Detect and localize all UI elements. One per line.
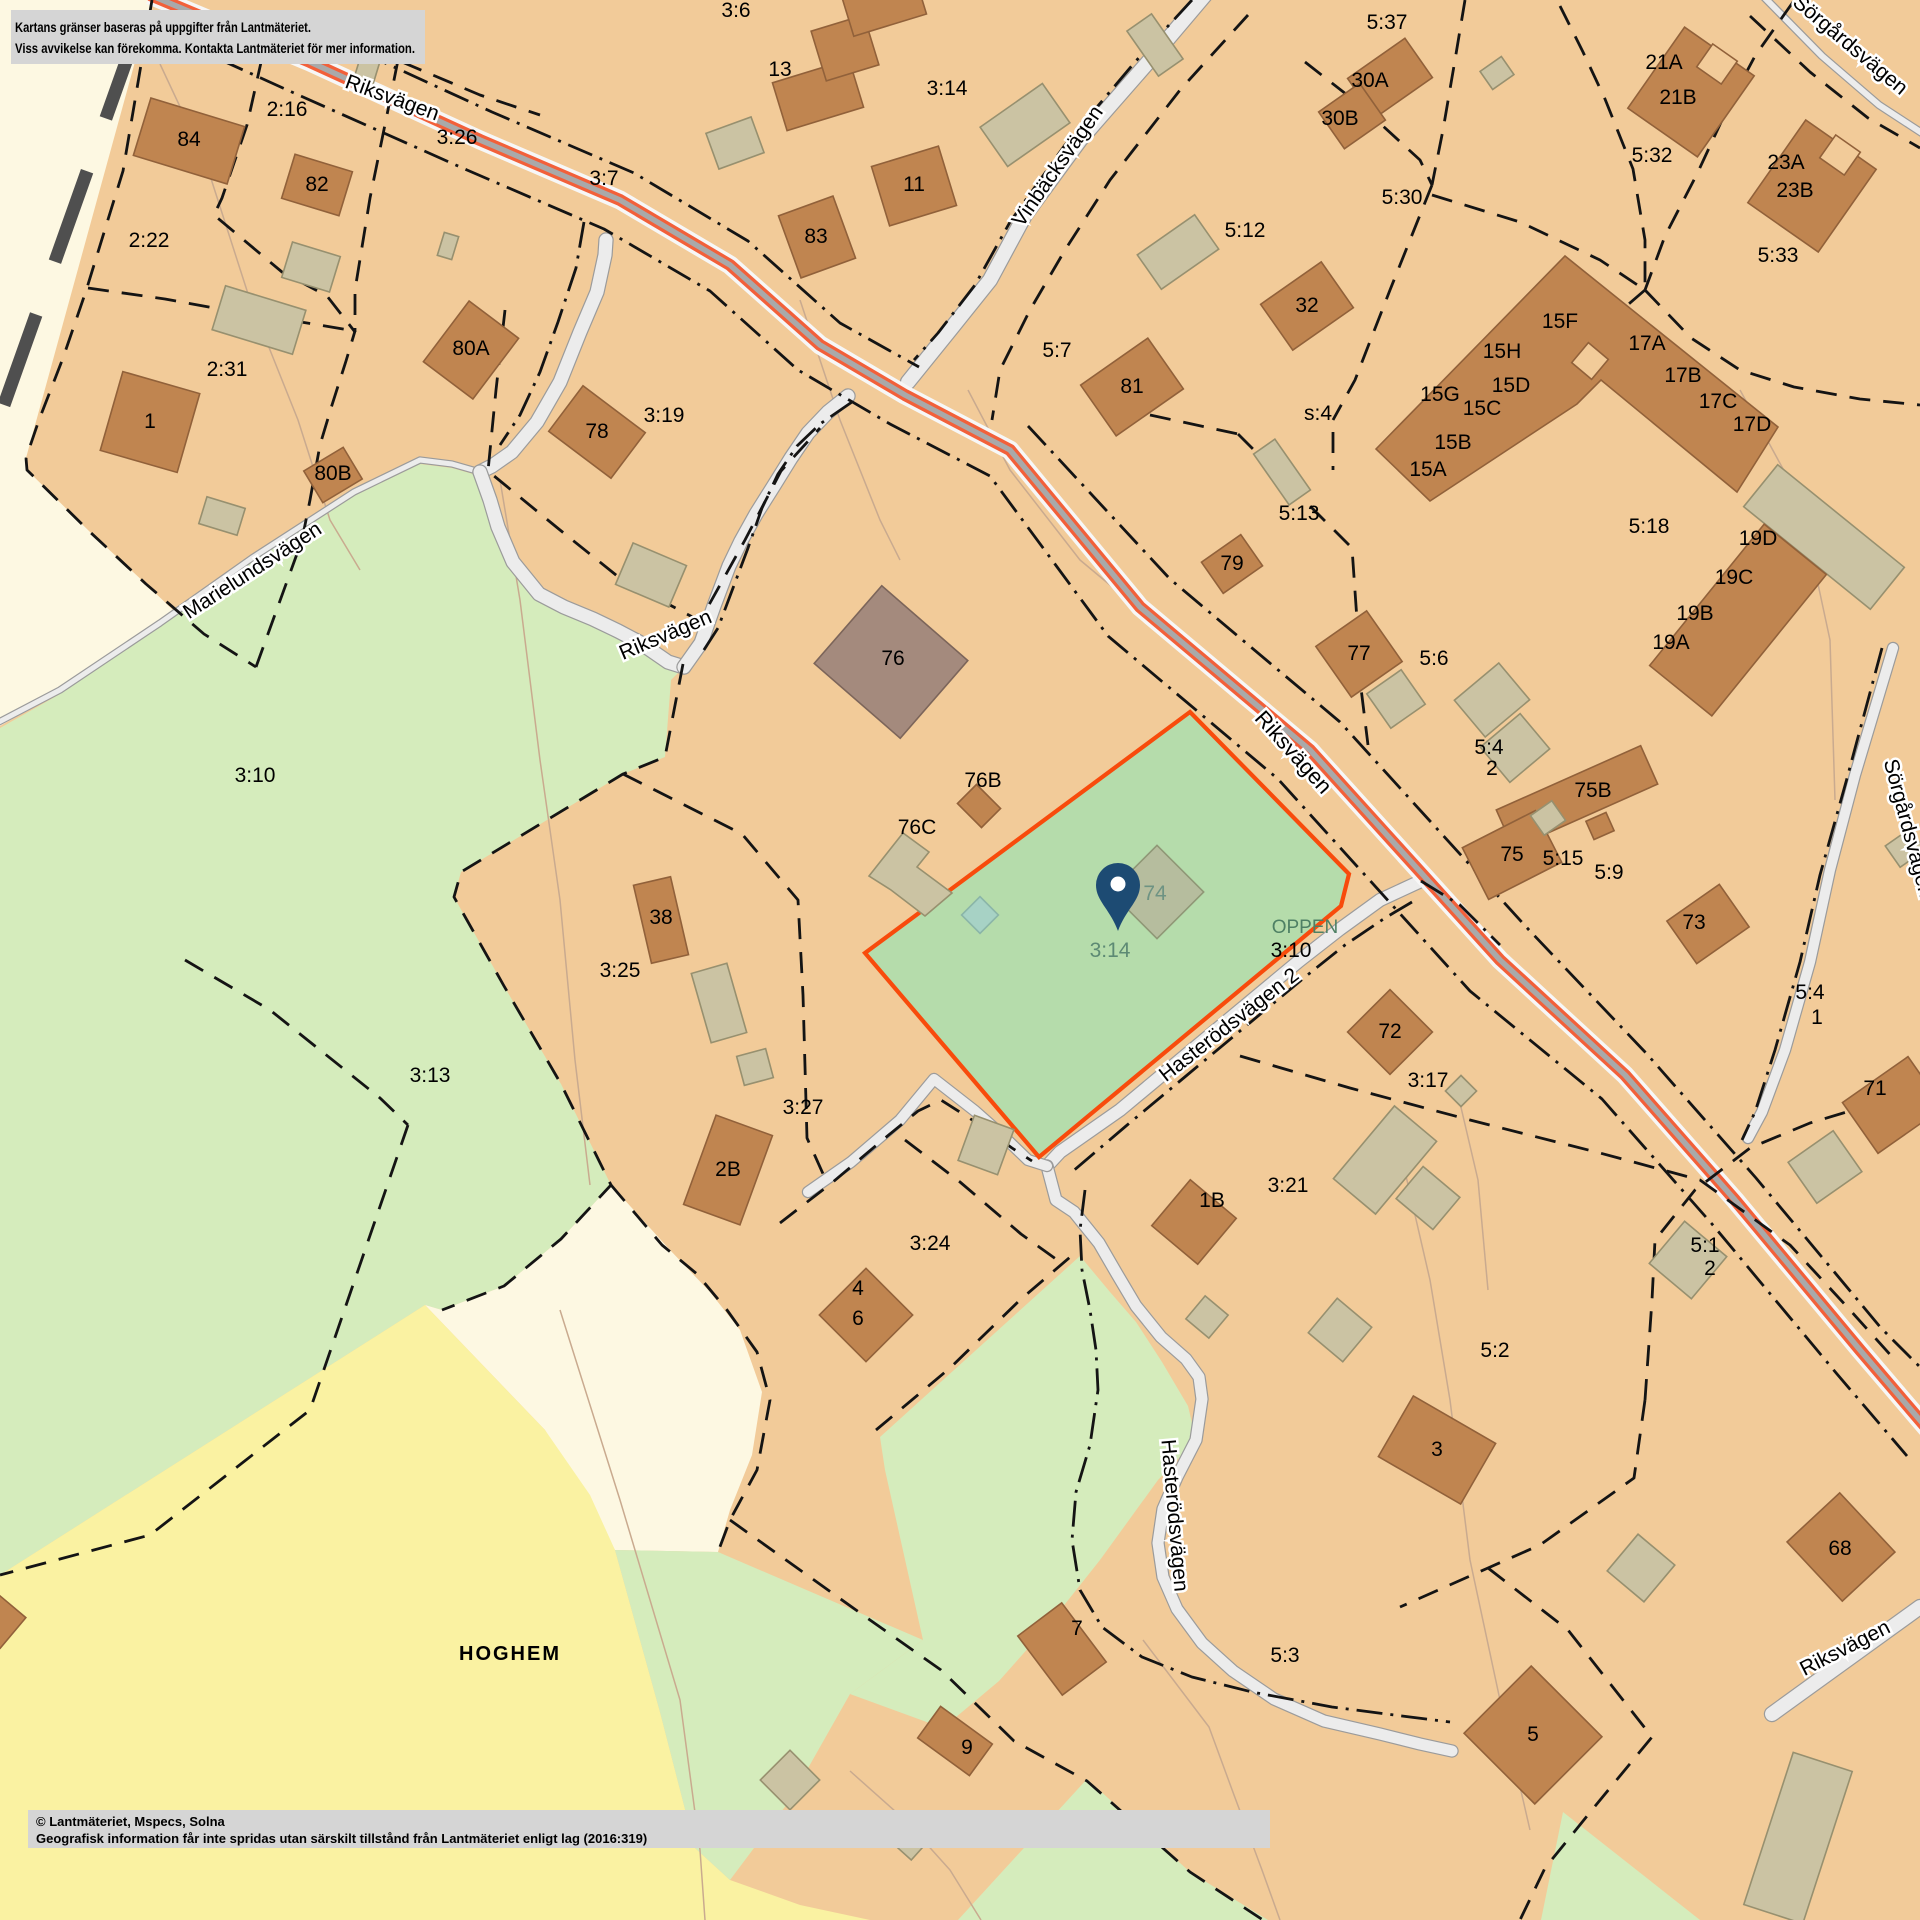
svg-text:3:21: 3:21 xyxy=(1268,1174,1309,1197)
svg-text:23B: 23B xyxy=(1776,179,1813,202)
svg-text:75: 75 xyxy=(1500,843,1523,866)
svg-text:21A: 21A xyxy=(1645,51,1682,74)
svg-text:17A: 17A xyxy=(1628,332,1665,355)
svg-text:3:10: 3:10 xyxy=(235,764,276,787)
svg-text:OPPEN: OPPEN xyxy=(1272,917,1339,938)
svg-text:3:10: 3:10 xyxy=(1271,939,1312,962)
svg-text:5:30: 5:30 xyxy=(1382,186,1423,209)
svg-text:74: 74 xyxy=(1143,882,1167,905)
svg-text:1: 1 xyxy=(1811,1006,1823,1029)
svg-text:30B: 30B xyxy=(1321,107,1358,130)
svg-text:15D: 15D xyxy=(1492,374,1531,397)
svg-text:3:26: 3:26 xyxy=(437,126,478,149)
svg-text:11: 11 xyxy=(903,173,925,196)
svg-text:5:9: 5:9 xyxy=(1594,861,1623,884)
svg-text:17D: 17D xyxy=(1733,413,1772,436)
svg-text:2:16: 2:16 xyxy=(267,98,308,121)
svg-text:2: 2 xyxy=(1486,757,1498,780)
svg-text:15F: 15F xyxy=(1542,310,1578,333)
svg-text:77: 77 xyxy=(1347,642,1370,665)
svg-text:19B: 19B xyxy=(1676,602,1713,625)
svg-text:2B: 2B xyxy=(715,1158,741,1181)
svg-text:80B: 80B xyxy=(314,462,351,485)
svg-text:6: 6 xyxy=(852,1307,864,1330)
svg-text:3:7: 3:7 xyxy=(589,167,618,190)
svg-text:2:22: 2:22 xyxy=(129,229,170,252)
svg-text:32: 32 xyxy=(1295,294,1318,317)
svg-text:2: 2 xyxy=(1704,1257,1716,1280)
svg-text:1: 1 xyxy=(144,410,156,433)
svg-text:15H: 15H xyxy=(1483,340,1522,363)
svg-text:19A: 19A xyxy=(1652,631,1689,654)
svg-text:5:4: 5:4 xyxy=(1795,981,1825,1004)
svg-text:5:2: 5:2 xyxy=(1480,1339,1509,1362)
svg-text:15C: 15C xyxy=(1463,397,1502,420)
svg-text:21B: 21B xyxy=(1659,86,1696,109)
svg-text:5:32: 5:32 xyxy=(1632,144,1673,167)
svg-text:3:19: 3:19 xyxy=(644,404,685,427)
svg-text:75B: 75B xyxy=(1574,779,1611,802)
svg-text:Viss avvikelse kan förekomma.: Viss avvikelse kan förekomma. Kontakta L… xyxy=(15,40,415,56)
svg-text:4: 4 xyxy=(852,1277,864,1300)
svg-text:5:1: 5:1 xyxy=(1690,1234,1719,1257)
svg-text:84: 84 xyxy=(177,128,201,151)
svg-text:Kartans gränser baseras på upp: Kartans gränser baseras på uppgifter frå… xyxy=(15,19,311,35)
svg-text:13: 13 xyxy=(768,58,791,81)
svg-text:3:6: 3:6 xyxy=(721,0,750,22)
svg-text:79: 79 xyxy=(1220,552,1243,575)
svg-text:3:25: 3:25 xyxy=(600,959,641,982)
svg-text:17C: 17C xyxy=(1699,390,1738,413)
svg-text:71: 71 xyxy=(1863,1077,1886,1100)
svg-text:23A: 23A xyxy=(1767,151,1804,174)
svg-text:1B: 1B xyxy=(1199,1189,1225,1212)
svg-text:5:33: 5:33 xyxy=(1758,244,1799,267)
svg-text:76C: 76C xyxy=(898,816,937,839)
svg-text:3:24: 3:24 xyxy=(910,1232,951,1255)
svg-text:38: 38 xyxy=(649,906,672,929)
svg-text:5:18: 5:18 xyxy=(1629,515,1670,538)
svg-text:81: 81 xyxy=(1120,375,1143,398)
svg-text:82: 82 xyxy=(305,173,328,196)
svg-text:17B: 17B xyxy=(1664,364,1701,387)
svg-text:15B: 15B xyxy=(1434,431,1471,454)
svg-text:3:27: 3:27 xyxy=(783,1096,824,1119)
svg-text:80A: 80A xyxy=(452,337,489,360)
svg-text:76: 76 xyxy=(881,647,904,670)
svg-text:72: 72 xyxy=(1378,1020,1401,1043)
svg-text:15G: 15G xyxy=(1420,383,1460,406)
svg-text:7: 7 xyxy=(1071,1617,1083,1640)
svg-text:78: 78 xyxy=(585,420,608,443)
svg-text:2:31: 2:31 xyxy=(207,358,248,381)
svg-text:9: 9 xyxy=(961,1736,973,1759)
svg-text:s:4: s:4 xyxy=(1304,402,1332,425)
svg-text:5: 5 xyxy=(1527,1723,1539,1746)
svg-text:5:7: 5:7 xyxy=(1042,339,1071,362)
svg-text:5:4: 5:4 xyxy=(1474,736,1504,759)
svg-text:68: 68 xyxy=(1828,1537,1851,1560)
svg-text:76B: 76B xyxy=(964,769,1001,792)
svg-text:3:14: 3:14 xyxy=(927,77,968,100)
svg-text:5:15: 5:15 xyxy=(1543,847,1584,870)
svg-text:3:14: 3:14 xyxy=(1090,939,1131,962)
svg-text:30A: 30A xyxy=(1351,69,1388,92)
svg-text:5:6: 5:6 xyxy=(1419,647,1448,670)
svg-text:15A: 15A xyxy=(1409,458,1446,481)
svg-text:5:3: 5:3 xyxy=(1270,1644,1299,1667)
svg-text:5:37: 5:37 xyxy=(1367,11,1408,34)
svg-text:19D: 19D xyxy=(1739,527,1778,550)
svg-text:3:13: 3:13 xyxy=(410,1064,451,1087)
svg-text:5:12: 5:12 xyxy=(1225,219,1266,242)
svg-text:© Lantmäteriet, Mspecs, Solna: © Lantmäteriet, Mspecs, Solna xyxy=(36,1814,226,1829)
svg-text:3: 3 xyxy=(1431,1438,1443,1461)
svg-text:HOGHEM: HOGHEM xyxy=(459,1643,561,1665)
svg-text:19C: 19C xyxy=(1715,566,1754,589)
svg-text:Geografisk information får int: Geografisk information får inte spridas … xyxy=(36,1831,647,1846)
svg-text:3:17: 3:17 xyxy=(1408,1069,1449,1092)
svg-text:5:13: 5:13 xyxy=(1279,502,1320,525)
svg-text:83: 83 xyxy=(804,225,827,248)
svg-text:73: 73 xyxy=(1682,911,1705,934)
